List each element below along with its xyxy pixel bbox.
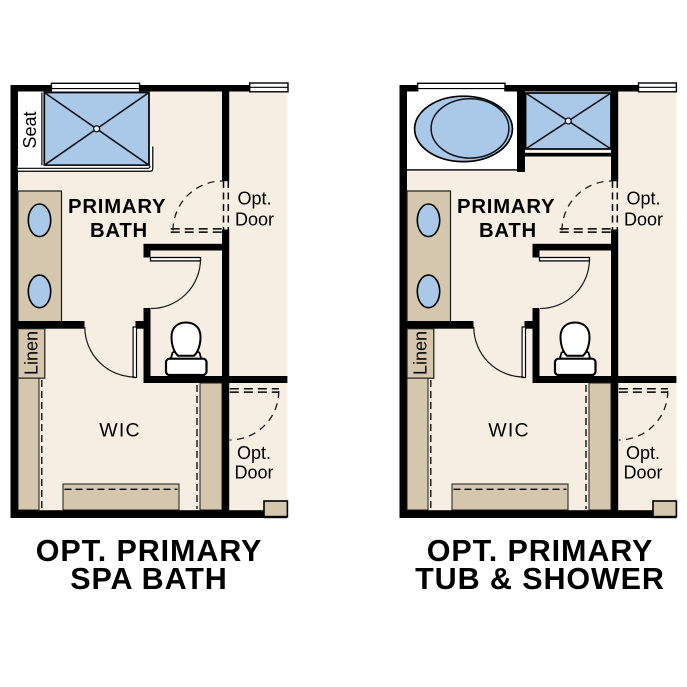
svg-text:Linen: Linen (22, 331, 42, 375)
svg-text:SPA BATH: SPA BATH (70, 562, 227, 596)
svg-text:BATH: BATH (479, 220, 537, 242)
svg-text:WIC: WIC (99, 420, 141, 442)
svg-text:WIC: WIC (488, 420, 530, 442)
svg-text:Opt.: Opt. (626, 443, 660, 463)
svg-text:Seat: Seat (20, 111, 40, 148)
svg-text:Door: Door (623, 463, 662, 483)
svg-text:PRIMARY: PRIMARY (457, 196, 555, 218)
svg-text:Linen: Linen (411, 331, 431, 375)
svg-text:PRIMARY: PRIMARY (68, 196, 166, 218)
svg-text:Door: Door (235, 209, 274, 229)
svg-text:Door: Door (234, 463, 273, 483)
svg-text:TUB & SHOWER: TUB & SHOWER (415, 562, 665, 596)
svg-text:Opt.: Opt. (237, 443, 271, 463)
svg-text:Door: Door (624, 209, 663, 229)
svg-text:Opt.: Opt. (237, 189, 271, 209)
svg-text:BATH: BATH (90, 220, 148, 242)
svg-text:Opt.: Opt. (626, 189, 660, 209)
